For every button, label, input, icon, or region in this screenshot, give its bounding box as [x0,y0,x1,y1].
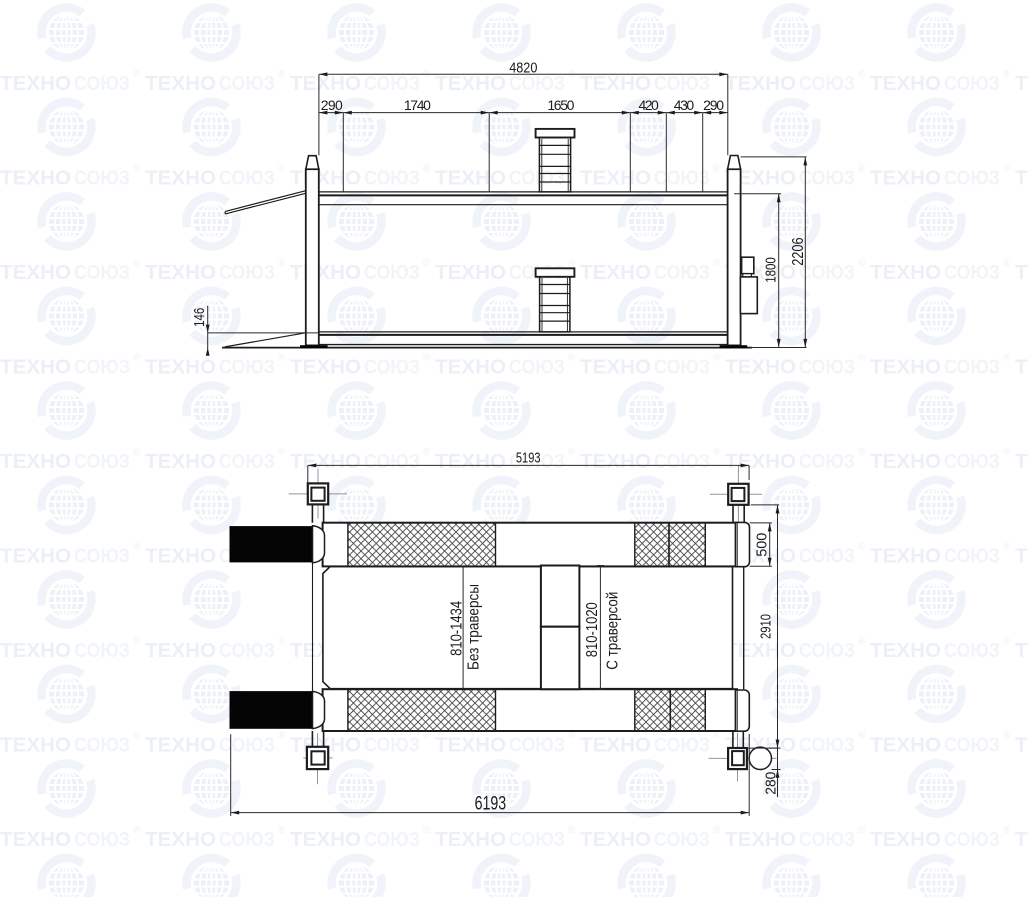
svg-text:810-1020: 810-1020 [584,602,601,657]
svg-text:290: 290 [321,97,343,113]
svg-text:280: 280 [762,772,779,795]
svg-text:1650: 1650 [547,97,574,113]
svg-text:С траверсой: С траверсой [605,592,622,670]
svg-text:5193: 5193 [516,450,541,466]
svg-text:430: 430 [674,97,695,113]
svg-text:2206: 2206 [790,237,807,265]
svg-text:810-1434: 810-1434 [449,601,466,656]
svg-text:1740: 1740 [404,97,431,113]
svg-text:4820: 4820 [509,59,537,76]
svg-text:Без траверсы: Без траверсы [466,584,483,670]
svg-text:500: 500 [755,533,771,557]
svg-text:146: 146 [192,308,208,327]
svg-text:2910: 2910 [758,614,774,639]
svg-text:1800: 1800 [764,257,780,283]
svg-text:290: 290 [703,97,724,113]
svg-text:420: 420 [638,97,659,113]
svg-text:6193: 6193 [475,794,507,815]
